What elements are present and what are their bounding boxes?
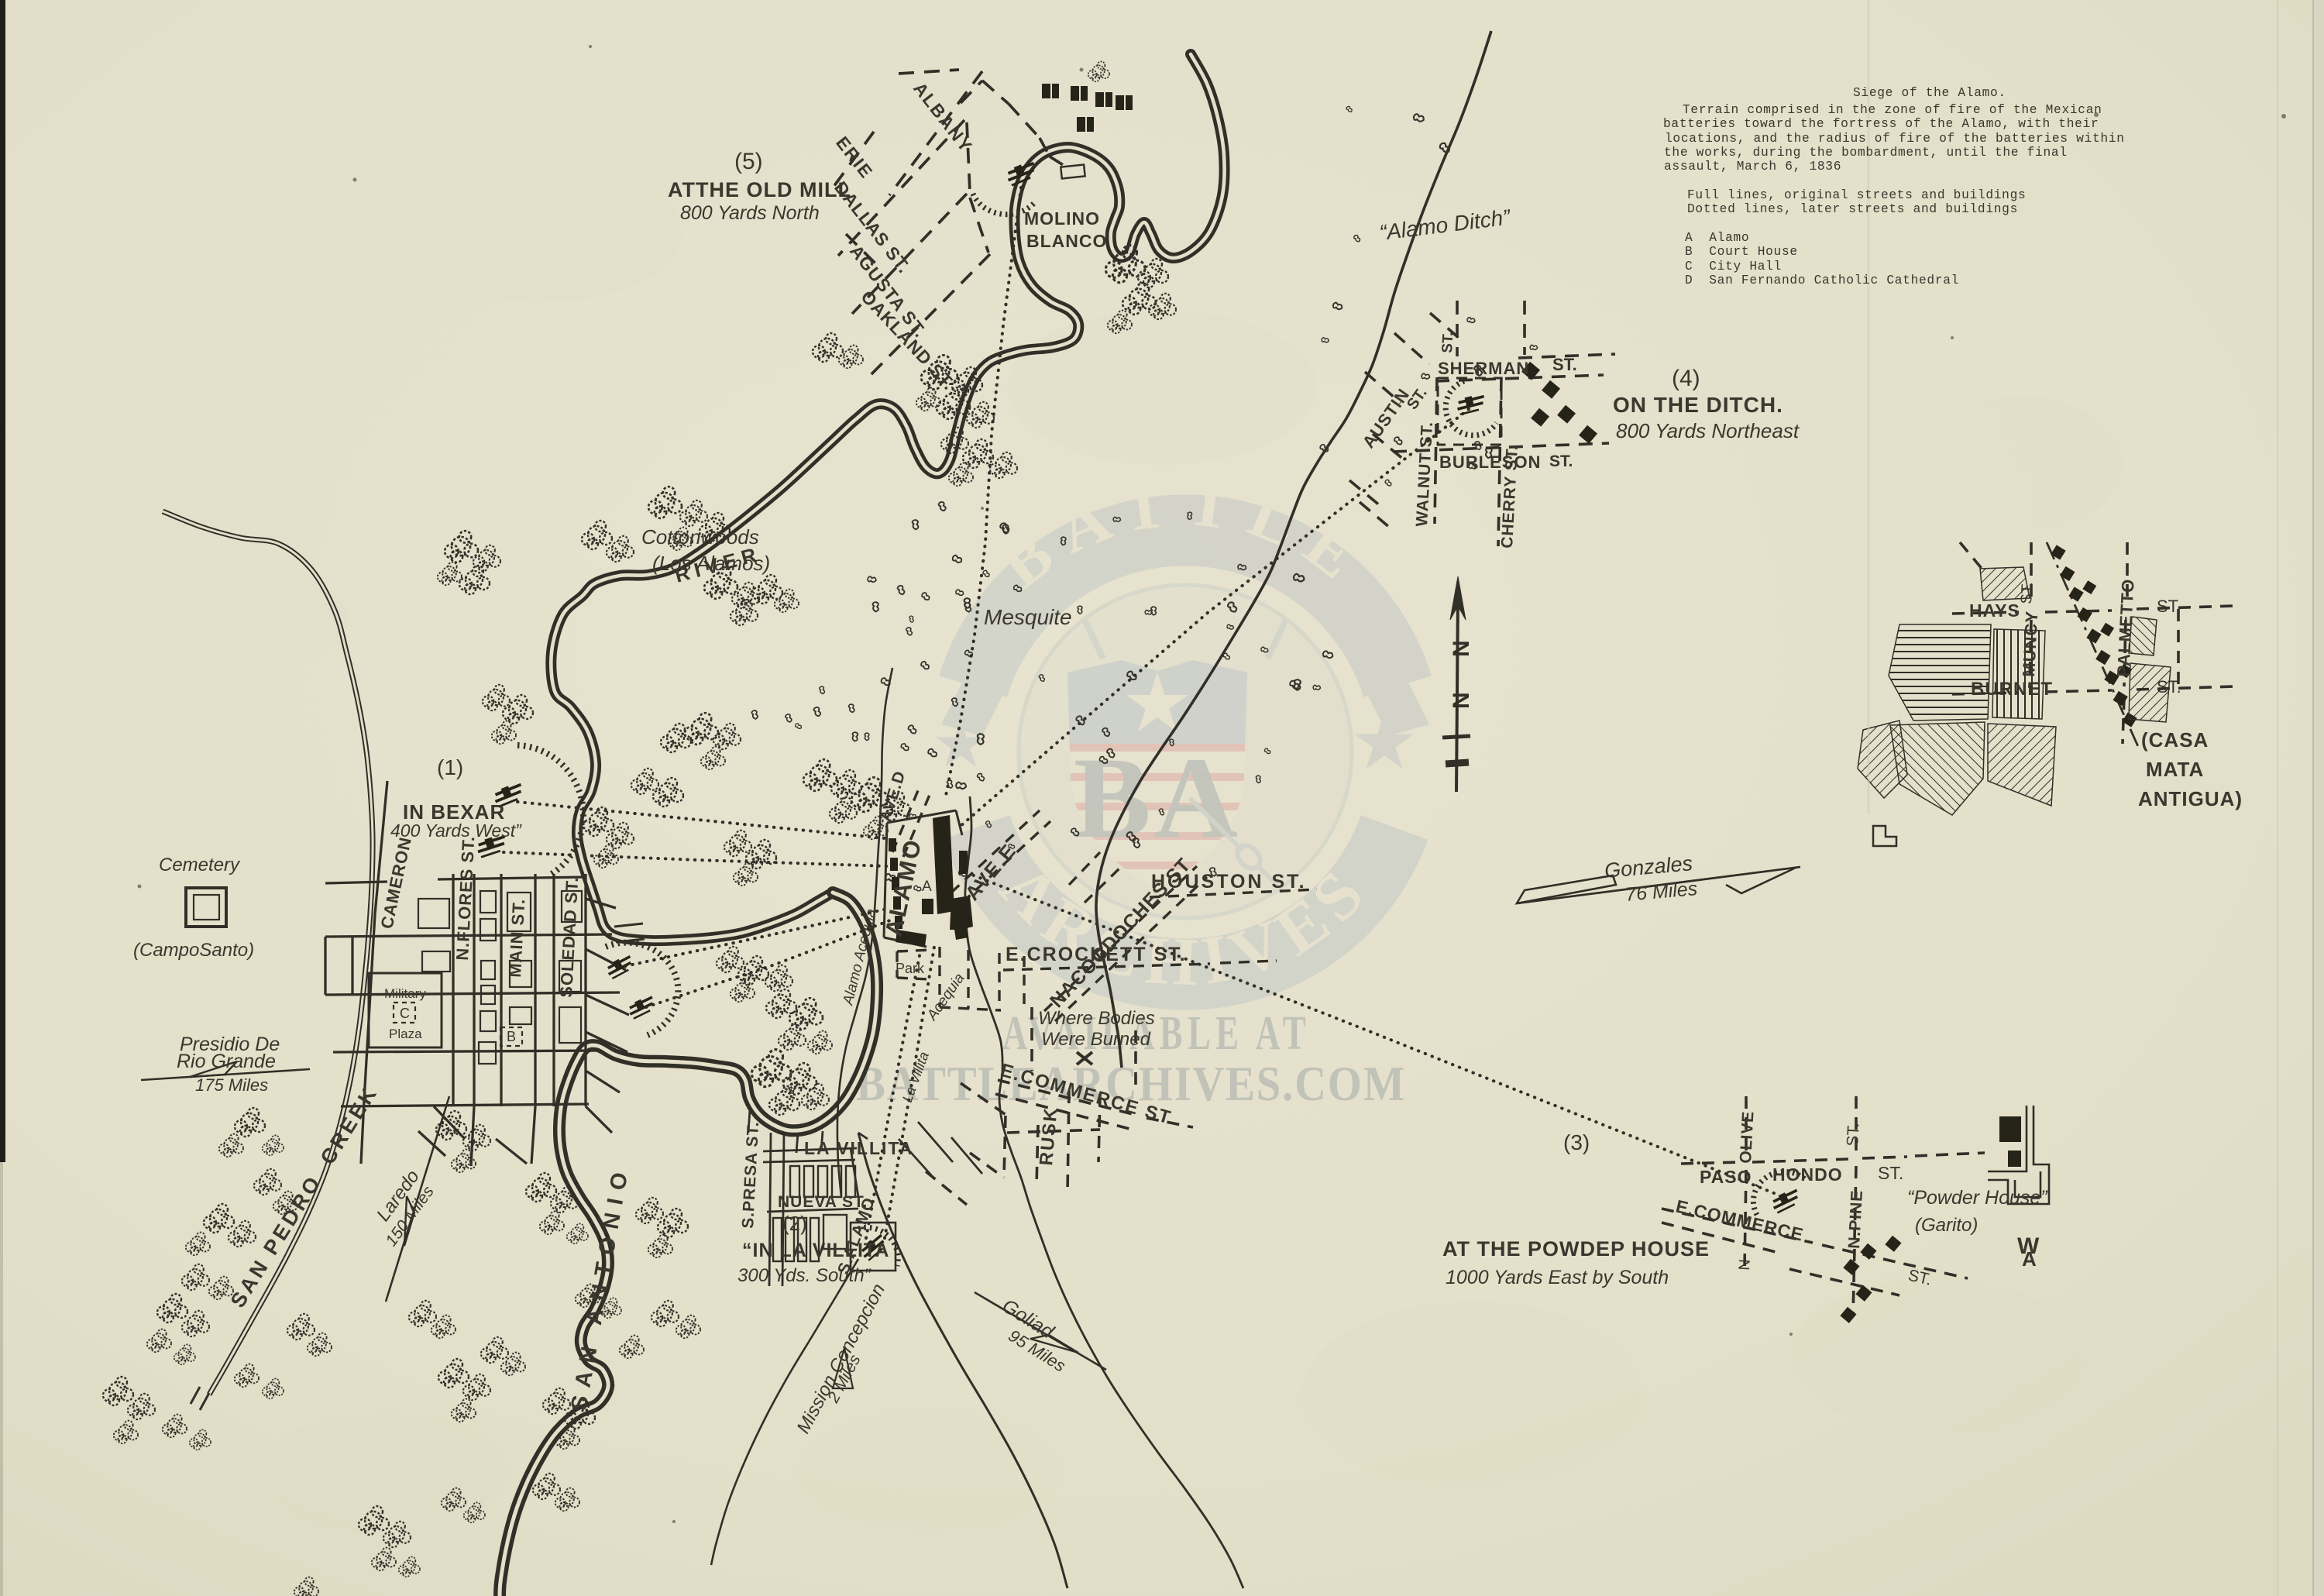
svg-text:Military: Military (384, 986, 426, 1001)
svg-text:N: N (1449, 692, 1474, 709)
svg-text:(CampoSanto): (CampoSanto) (133, 940, 254, 961)
svg-text:Siege of the Alamo.: Siege of the Alamo. (1853, 86, 2006, 100)
svg-text:ON THE DITCH.: ON THE DITCH. (1613, 393, 1783, 417)
svg-text:Mesquite: Mesquite (984, 605, 1072, 629)
svg-text:HAYS: HAYS (1969, 600, 2020, 621)
svg-text:“Powder House”: “Powder House” (1907, 1187, 2048, 1209)
svg-text:800 Yards North: 800 Yards North (680, 202, 820, 224)
svg-text:ATTHE OLD MILL: ATTHE OLD MILL (668, 178, 851, 201)
svg-text:ST.: ST. (1844, 1123, 1863, 1147)
svg-text:AT THE POWDEP HOUSE: AT THE POWDEP HOUSE (1442, 1237, 1710, 1261)
svg-text:300 Yds. South”: 300 Yds. South” (737, 1265, 871, 1286)
svg-text:(5): (5) (734, 149, 763, 174)
svg-text:N: N (1449, 640, 1474, 657)
svg-text:N.PINE: N.PINE (1845, 1189, 1866, 1249)
svg-text:NUEVA ST.: NUEVA ST. (778, 1193, 868, 1211)
svg-text:A: A (922, 879, 932, 895)
svg-text:BURNET: BURNET (1971, 679, 2053, 700)
svg-text:MATA: MATA (2146, 758, 2204, 781)
svg-text:Where Bodies: Where Bodies (1038, 1008, 1155, 1029)
svg-text:(CASA: (CASA (2141, 728, 2209, 752)
svg-text:Rio Grande: Rio Grande (177, 1051, 276, 1072)
svg-text:MUNCY: MUNCY (2019, 610, 2041, 677)
svg-text:SHERMAN: SHERMAN (1438, 359, 1529, 378)
svg-text:batteries toward the fortress: batteries toward the fortress of the Ala… (1663, 117, 2099, 131)
svg-text:HOUSTON ST.: HOUSTON ST. (1151, 871, 1307, 893)
svg-text:B Court House: B Court House (1685, 245, 1798, 259)
svg-text:Cemetery: Cemetery (159, 855, 241, 875)
svg-text:OLIVE: OLIVE (1737, 1110, 1758, 1164)
svg-text:A: A (2022, 1247, 2037, 1271)
svg-text:D San Fernando Catholic Cathe: D San Fernando Catholic Cathedral (1685, 273, 1959, 287)
svg-text:Terrain comprised in the zone: Terrain comprised in the zone of fire of… (1683, 103, 2102, 117)
svg-text:BURLESON: BURLESON (1439, 452, 1541, 472)
svg-text:ST.: ST. (1878, 1163, 1903, 1183)
svg-text:locations, and the radius of f: locations, and the radius of fire of the… (1665, 132, 2125, 146)
svg-text:B: B (507, 1029, 516, 1044)
svg-text:(2): (2) (782, 1212, 807, 1235)
svg-text:Were Burned: Were Burned (1041, 1029, 1151, 1050)
svg-text:ST.: ST. (1552, 355, 1577, 374)
svg-text:HONDO: HONDO (1772, 1164, 1843, 1185)
svg-text:1000 Yards East by South: 1000 Yards East by South (1446, 1267, 1669, 1288)
svg-text:ANTIGUA): ANTIGUA) (2138, 787, 2243, 810)
svg-text:the works, during the bombardm: the works, during the bombardment, until… (1664, 146, 2068, 160)
svg-text:N: N (1736, 1259, 1754, 1271)
svg-text:(1): (1) (437, 755, 463, 779)
svg-text:assault, March 6, 1836: assault, March 6, 1836 (1664, 160, 1841, 174)
svg-text:175 Miles: 175 Miles (195, 1075, 268, 1095)
svg-text:C: C (400, 1006, 410, 1021)
svg-text:400 Yards West”: 400 Yards West” (390, 820, 522, 841)
svg-text:(Garito): (Garito) (1915, 1215, 1978, 1236)
svg-text:MOLINO: MOLINO (1024, 208, 1100, 229)
svg-text:Full lines, original streets a: Full lines, original streets and buildin… (1687, 188, 2026, 202)
svg-text:C City Hall: C City Hall (1685, 260, 1782, 273)
svg-text:PASO: PASO (1700, 1167, 1752, 1187)
svg-text:ST.: ST. (1439, 332, 1456, 354)
svg-text:E.CROCKETT ST.: E.CROCKETT ST. (1006, 944, 1187, 965)
svg-text:Dotted lines, later streets an: Dotted lines, later streets and building… (1687, 202, 2018, 216)
svg-text:(4): (4) (1672, 366, 1700, 391)
svg-text:Plaza: Plaza (389, 1027, 422, 1041)
svg-text:Park: Park (896, 961, 925, 976)
svg-text:ST.: ST. (1549, 452, 1573, 470)
svg-text:BLANCO: BLANCO (1026, 231, 1107, 251)
svg-text:(3): (3) (1563, 1130, 1590, 1154)
svg-text:ST.: ST. (2018, 581, 2036, 604)
svg-text:LA VILLITA: LA VILLITA (804, 1138, 913, 1158)
svg-text:800 Yards Northeast: 800 Yards Northeast (1616, 419, 1800, 442)
svg-text:ST.: ST. (2157, 677, 2181, 697)
svg-text:MAIN ST.: MAIN ST. (505, 898, 528, 978)
svg-text:ST.: ST. (2157, 597, 2181, 616)
svg-text:A Alamo: A Alamo (1685, 231, 1749, 245)
svg-text:Cottonwoods: Cottonwoods (641, 525, 759, 549)
svg-text:“IN LA VILLITA: “IN LA VILLITA (742, 1240, 889, 1261)
